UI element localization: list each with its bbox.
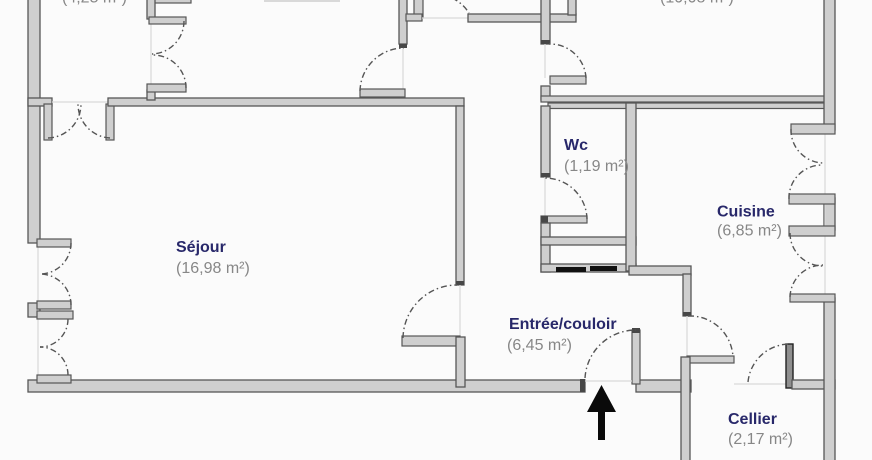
svg-text:(1,19 m²): (1,19 m²) bbox=[564, 158, 629, 175]
svg-text:Wc: Wc bbox=[564, 137, 588, 154]
svg-text:Entrée/couloir: Entrée/couloir bbox=[509, 316, 617, 333]
svg-text:(4,25 m²): (4,25 m²) bbox=[62, 0, 127, 7]
svg-text:(2,17 m²): (2,17 m²) bbox=[728, 431, 793, 448]
svg-text:(6,45 m²): (6,45 m²) bbox=[507, 337, 572, 354]
svg-text:Cuisine: Cuisine bbox=[717, 204, 775, 221]
svg-text:(6,85 m²): (6,85 m²) bbox=[717, 223, 782, 240]
svg-text:Séjour: Séjour bbox=[176, 239, 226, 256]
svg-text:Cellier: Cellier bbox=[728, 411, 777, 428]
svg-text:(10,08 m²): (10,08 m²) bbox=[660, 0, 734, 7]
svg-text:(16,98 m²): (16,98 m²) bbox=[176, 260, 250, 277]
